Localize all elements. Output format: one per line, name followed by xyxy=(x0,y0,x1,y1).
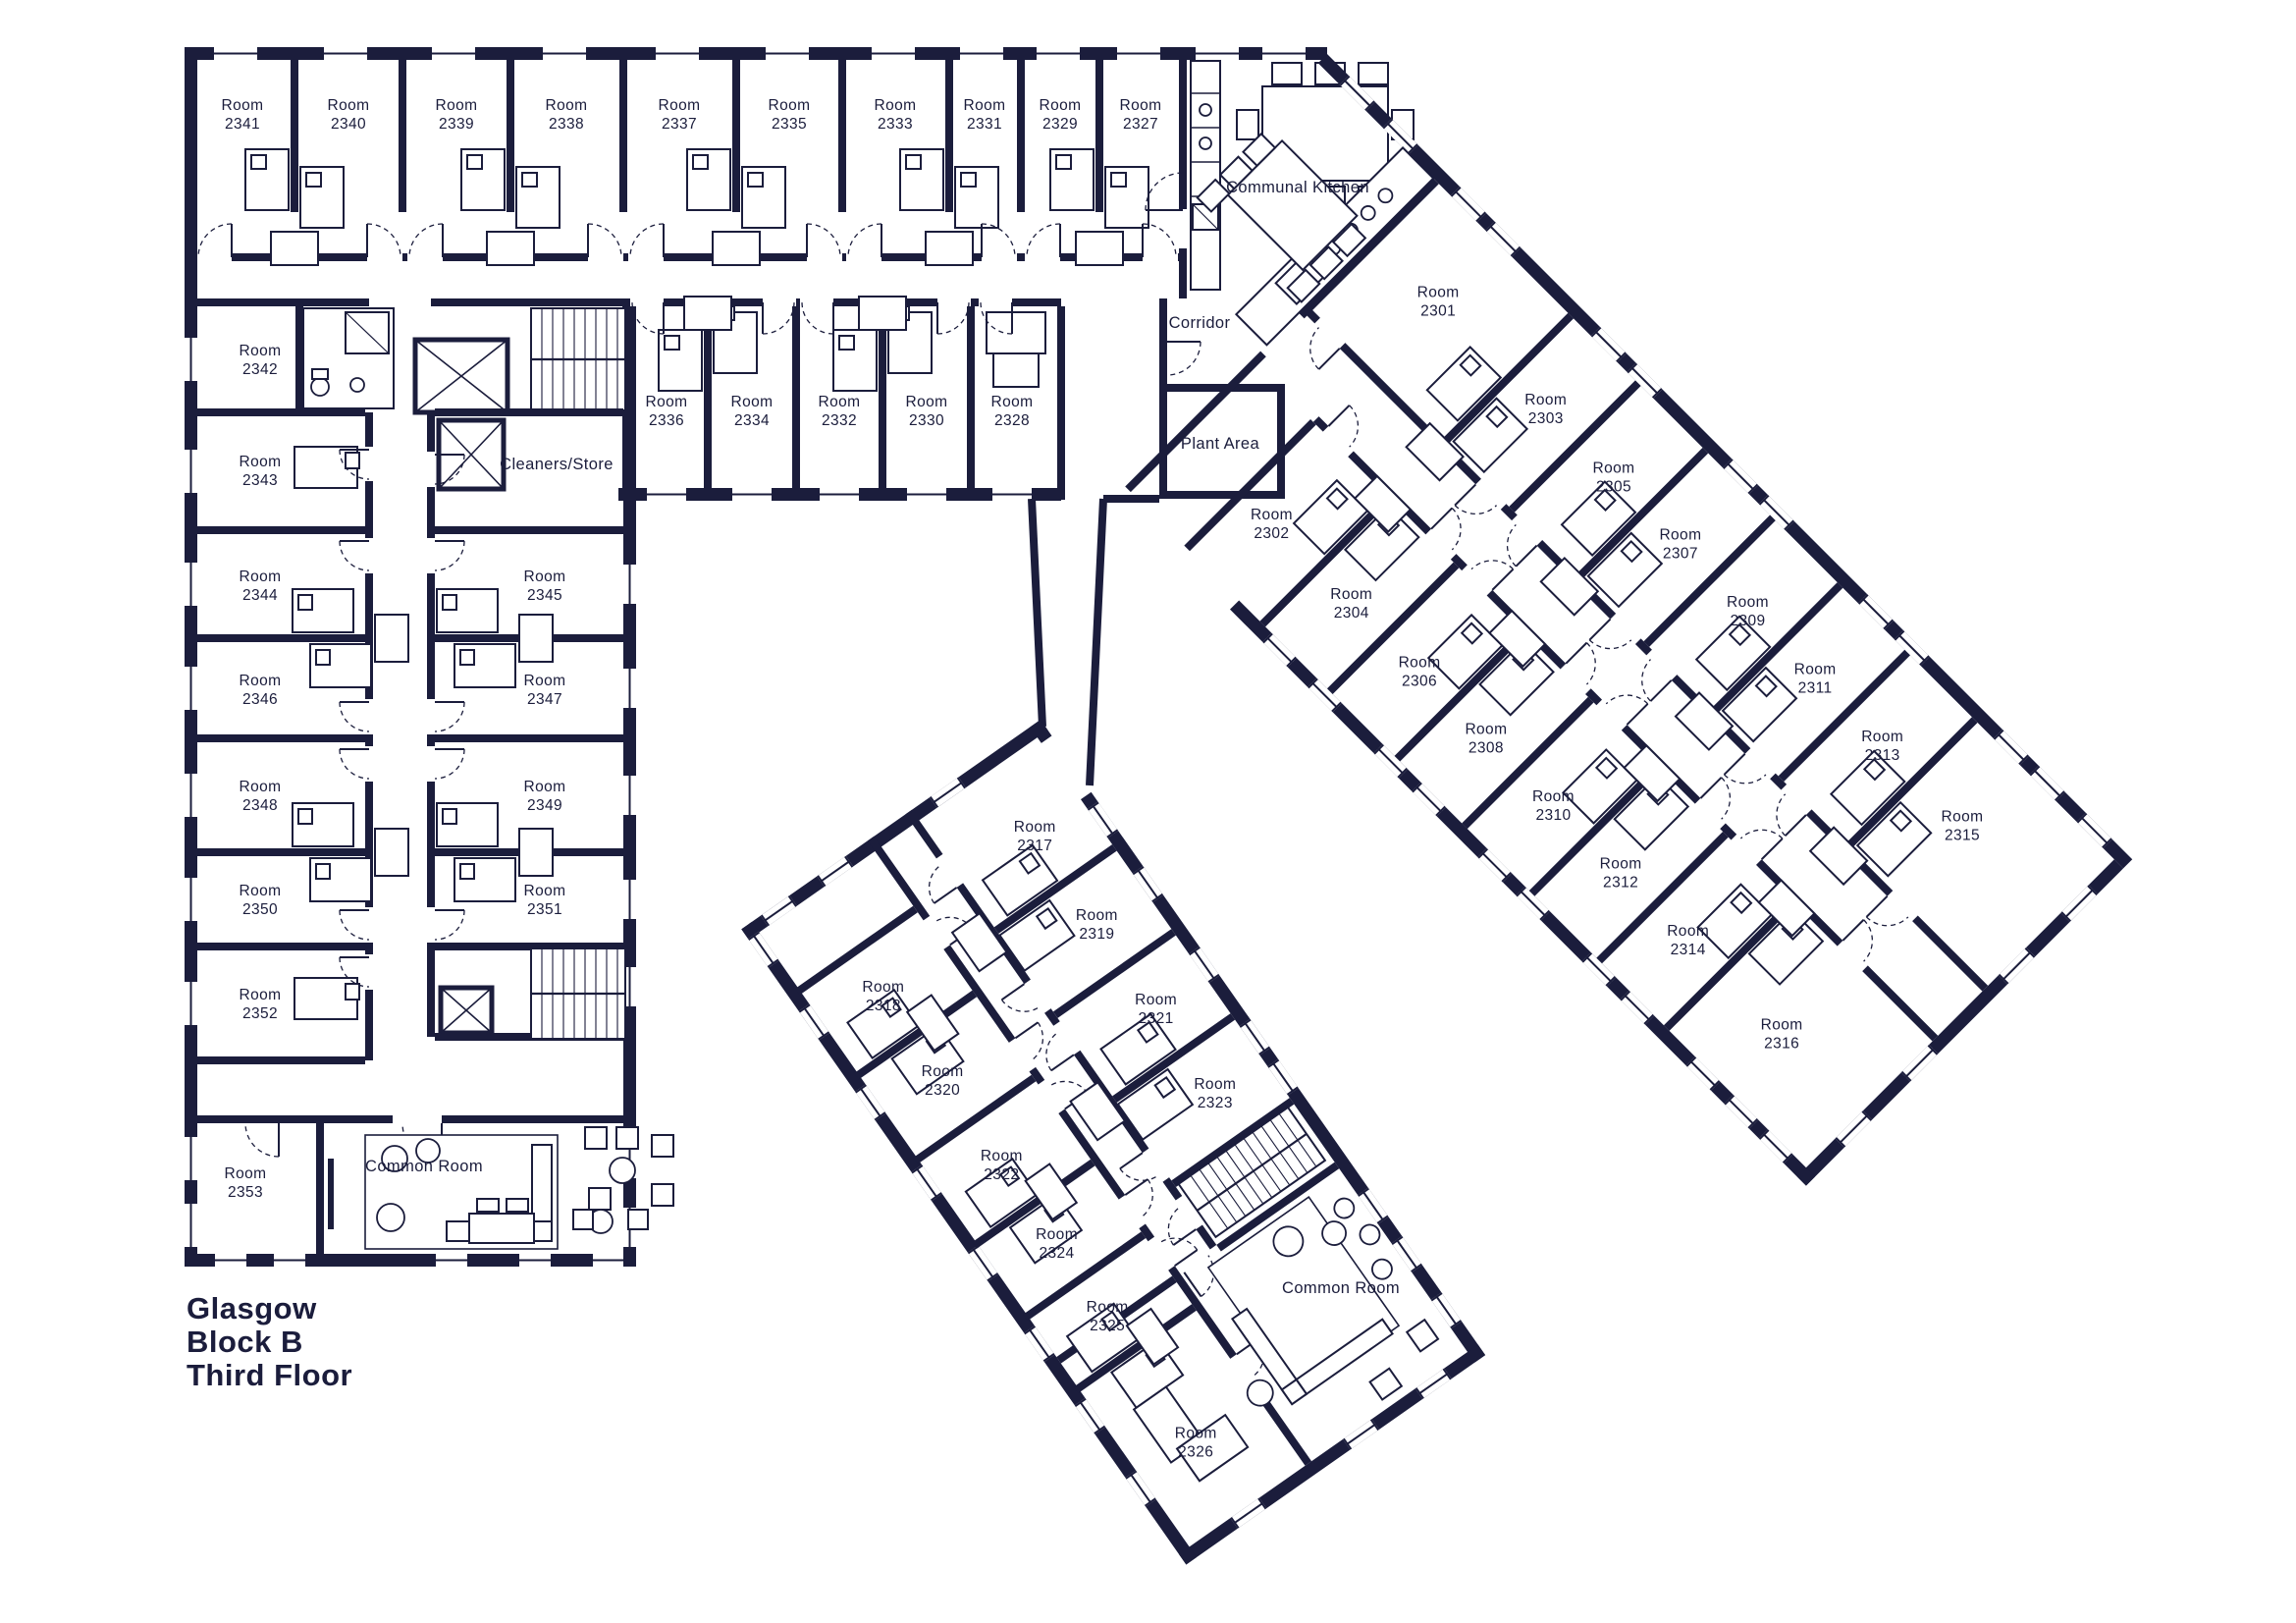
wall xyxy=(197,1115,324,1123)
furniture-outline xyxy=(616,1127,638,1149)
wall xyxy=(427,573,435,699)
door-arc xyxy=(1146,173,1183,210)
furniture-outline xyxy=(519,615,553,662)
door-arc xyxy=(937,302,969,334)
room-label-2305: Room2305 xyxy=(1593,460,1635,495)
wall xyxy=(1596,832,1728,963)
furniture-outline xyxy=(1237,110,1258,139)
room-label-2304: Room2304 xyxy=(1330,586,1372,622)
furniture-outline xyxy=(312,369,328,379)
door-arc xyxy=(848,224,881,257)
wall xyxy=(435,408,623,416)
room-label-2331: Room2331 xyxy=(964,97,1006,133)
room-label-2319: Room2319 xyxy=(1076,907,1118,943)
furniture-outline xyxy=(306,173,321,187)
door-arc xyxy=(1471,548,1513,589)
door-arc xyxy=(1001,984,1040,1022)
plan-line xyxy=(934,888,957,903)
title-block-name: Block B xyxy=(187,1325,303,1359)
door-arc xyxy=(1866,896,1907,938)
wall xyxy=(879,306,886,488)
room-label-2336: Room2336 xyxy=(646,394,688,429)
door-arc xyxy=(435,910,464,940)
wall xyxy=(402,253,407,261)
room-label-2343: Room2343 xyxy=(240,454,282,489)
door-arc xyxy=(1027,224,1060,257)
plan-line xyxy=(1001,984,1024,1000)
wall xyxy=(295,306,303,408)
room-label-2345: Room2345 xyxy=(524,568,566,604)
room-label-2302: Room2302 xyxy=(1251,507,1293,542)
plan-line xyxy=(1015,1022,1038,1038)
plan-line xyxy=(1125,1179,1148,1195)
plan-line xyxy=(1589,620,1610,640)
furniture-outline xyxy=(460,650,474,665)
plan-line xyxy=(1051,1055,1074,1070)
wall xyxy=(1912,916,1988,992)
plan-line xyxy=(1319,349,1340,369)
room-label-2310: Room2310 xyxy=(1532,788,1575,824)
wall xyxy=(365,481,373,538)
room-label-2309: Room2309 xyxy=(1727,594,1769,629)
door-arc xyxy=(1298,328,1339,369)
door-arc xyxy=(1125,1179,1163,1217)
room-label-2306: Room2306 xyxy=(1399,654,1441,689)
wall xyxy=(291,60,298,212)
furniture-circle xyxy=(377,1204,404,1231)
room-label-2315: Room2315 xyxy=(1942,808,1984,843)
door-arc xyxy=(340,910,369,940)
door-arc xyxy=(1589,620,1630,661)
wall xyxy=(316,1115,324,1262)
furniture-outline xyxy=(628,1210,648,1229)
wall xyxy=(1862,965,1938,1041)
door-arc xyxy=(807,224,840,257)
common-room-bottom-label: Common Room xyxy=(1282,1279,1400,1297)
plan-line xyxy=(1455,484,1475,505)
door-arc xyxy=(1328,406,1369,447)
room-label-2337: Room2337 xyxy=(659,97,701,133)
furniture-outline xyxy=(926,232,973,265)
wall xyxy=(945,60,953,212)
room-label-2342: Room2342 xyxy=(240,343,282,378)
wall xyxy=(1159,491,1285,499)
door-arc xyxy=(1167,342,1201,375)
furniture-outline xyxy=(859,297,906,330)
plan-line xyxy=(2034,770,2060,796)
door-arc xyxy=(340,702,369,731)
wall xyxy=(619,60,627,212)
furniture-outline xyxy=(961,173,976,187)
door-arc xyxy=(1842,920,1884,961)
plan-line xyxy=(1842,920,1863,941)
floor-plan-drawing: Communal Kitchen Corridor Plant Area Cle… xyxy=(0,0,2296,1623)
title-block: Glasgow Block B Third Floor xyxy=(187,1291,352,1392)
wall xyxy=(971,298,979,306)
room-label-2307: Room2307 xyxy=(1659,526,1701,562)
furniture-outline xyxy=(713,232,760,265)
wall xyxy=(838,60,846,212)
furniture-outline xyxy=(1056,155,1071,169)
door-arc xyxy=(802,302,833,334)
door-arc xyxy=(1724,754,1765,795)
plan-line xyxy=(2081,817,2108,843)
plan-line xyxy=(2065,890,2093,917)
wall xyxy=(1179,60,1187,209)
door-arc xyxy=(198,224,232,257)
wall xyxy=(427,782,435,907)
plan-line xyxy=(1516,546,1536,567)
wall xyxy=(324,1115,393,1123)
furniture-outline xyxy=(271,232,318,265)
wall xyxy=(365,943,373,954)
door-arc xyxy=(435,702,464,731)
room-label-2327: Room2327 xyxy=(1120,97,1162,133)
wall xyxy=(427,943,435,1037)
wall xyxy=(365,734,373,746)
furniture-outline xyxy=(652,1135,673,1157)
plan-line xyxy=(1120,1153,1143,1168)
door-arc xyxy=(588,224,621,257)
plan-line xyxy=(1724,754,1744,775)
furniture-outline xyxy=(589,1188,611,1210)
plan-line xyxy=(1328,406,1349,426)
plan-line xyxy=(2002,952,2030,980)
wall xyxy=(435,526,623,534)
wall xyxy=(1327,563,1459,694)
wall xyxy=(197,734,365,742)
common-room-left-label: Common Room xyxy=(365,1158,483,1175)
room-label-2301: Room2301 xyxy=(1417,284,1460,319)
wall xyxy=(1125,352,1266,493)
plan-line xyxy=(1173,1229,1196,1245)
room-label-2321: Room2321 xyxy=(1135,992,1177,1027)
furniture-outline xyxy=(298,809,312,824)
room-label-2316: Room2316 xyxy=(1761,1016,1803,1052)
furniture-outline xyxy=(316,650,330,665)
room-label-2349: Room2349 xyxy=(524,779,566,814)
furniture-outline xyxy=(519,829,553,876)
furniture-outline xyxy=(987,312,1045,353)
door-arc xyxy=(1495,524,1536,566)
wall xyxy=(905,810,942,859)
door-arc xyxy=(1700,778,1741,819)
furniture-outline xyxy=(1111,173,1126,187)
room-label-2340: Room2340 xyxy=(328,97,370,133)
door-arc xyxy=(409,224,443,257)
room-label-2338: Room2338 xyxy=(546,97,588,133)
wall xyxy=(792,306,800,488)
furniture-outline xyxy=(507,1199,528,1212)
wall xyxy=(868,837,930,921)
room-label-2341: Room2341 xyxy=(222,97,264,133)
title-project: Glasgow xyxy=(187,1291,317,1325)
plan-line xyxy=(1090,499,1103,785)
door-arc xyxy=(435,749,464,779)
wall xyxy=(507,60,514,212)
floor-plan-page: Communal Kitchen Corridor Plant Area Cle… xyxy=(0,0,2296,1623)
room-label-2344: Room2344 xyxy=(240,568,282,604)
wall xyxy=(1012,298,1061,306)
furniture-outline xyxy=(748,173,763,187)
wall xyxy=(197,408,365,416)
plan-line xyxy=(1595,331,1622,357)
furniture-circle xyxy=(311,378,329,396)
left-wing xyxy=(185,60,636,1267)
room-label-2308: Room2308 xyxy=(1465,721,1507,756)
room-label-2335: Room2335 xyxy=(769,97,811,133)
door-arc xyxy=(1740,818,1782,859)
wall xyxy=(197,1056,365,1064)
plan-line xyxy=(1455,191,1481,218)
wall xyxy=(191,298,369,306)
plan-line xyxy=(1700,778,1721,798)
wall xyxy=(185,1254,636,1267)
room-label-2339: Room2339 xyxy=(436,97,478,133)
wall xyxy=(427,412,435,452)
plan-line xyxy=(1998,734,2024,761)
wall xyxy=(1178,253,1183,261)
room-label-2313: Room2313 xyxy=(1861,729,1903,764)
plan-line xyxy=(1431,508,1452,528)
furniture-outline xyxy=(684,297,731,330)
room-label-2329: Room2329 xyxy=(1040,97,1082,133)
plan-line xyxy=(1866,896,1887,917)
furniture-outline xyxy=(443,595,456,610)
door-arc xyxy=(1036,1032,1074,1070)
wall xyxy=(1017,60,1025,212)
plan-line xyxy=(1762,839,1783,859)
door-arc xyxy=(435,541,464,570)
plan-line xyxy=(1840,1115,1867,1143)
furniture-circle xyxy=(350,378,364,392)
door-arc xyxy=(1431,508,1472,549)
furniture-outline xyxy=(346,984,359,1000)
wall xyxy=(1313,416,1329,432)
wall xyxy=(967,306,975,488)
furniture-circle xyxy=(1200,137,1211,149)
wall xyxy=(197,526,365,534)
wall xyxy=(435,734,623,742)
door-arc xyxy=(340,749,369,779)
furniture-outline xyxy=(1370,1369,1402,1400)
plan-line xyxy=(1905,1050,1933,1077)
plan-line xyxy=(1651,680,1672,701)
furniture-circle xyxy=(1200,104,1211,116)
door-arc xyxy=(1764,794,1805,836)
wall xyxy=(1017,253,1025,261)
room-label-2350: Room2350 xyxy=(240,883,282,918)
room-label-2347: Room2347 xyxy=(524,673,566,708)
room-label-2351: Room2351 xyxy=(524,883,566,918)
wall xyxy=(197,848,365,856)
plan-line xyxy=(1032,499,1042,727)
furniture-circle xyxy=(1243,1376,1278,1411)
furniture-outline xyxy=(487,232,534,265)
wall xyxy=(427,487,435,538)
furniture-outline xyxy=(1191,61,1220,290)
wall xyxy=(442,1115,623,1123)
furniture-circle xyxy=(610,1158,635,1183)
title-floor: Third Floor xyxy=(187,1358,352,1392)
wall xyxy=(796,298,800,306)
furniture-outline xyxy=(477,1199,499,1212)
plan-line xyxy=(1728,463,1754,490)
door-arc xyxy=(982,224,1015,257)
wall xyxy=(197,943,365,950)
wall xyxy=(185,60,197,1267)
furniture-outline xyxy=(460,864,474,879)
furniture-outline xyxy=(1407,1320,1438,1351)
wall xyxy=(431,298,630,306)
door-arc xyxy=(763,302,794,334)
door-arc xyxy=(1606,683,1647,725)
room-label-2330: Room2330 xyxy=(906,394,948,429)
furniture-outline xyxy=(298,595,312,610)
wall xyxy=(1095,60,1103,212)
furniture-outline xyxy=(652,1184,673,1206)
door-arc xyxy=(367,224,400,257)
wall xyxy=(842,253,846,261)
plan-line xyxy=(1490,226,1517,252)
door-arc xyxy=(1629,660,1671,701)
wall xyxy=(623,253,628,261)
furniture-outline xyxy=(346,453,359,468)
plan-line xyxy=(1863,599,1890,625)
furniture-outline xyxy=(443,809,456,824)
door-arc xyxy=(1143,224,1176,257)
room-label-2328: Room2328 xyxy=(991,394,1034,429)
furniture-outline xyxy=(993,353,1039,387)
room-label-2353: Room2353 xyxy=(225,1165,267,1201)
furniture-outline xyxy=(1076,232,1123,265)
wall xyxy=(365,990,373,1060)
room-label-2317: Room2317 xyxy=(1014,819,1056,854)
furniture-outline xyxy=(693,155,708,169)
wall xyxy=(197,634,365,642)
wall xyxy=(1462,697,1593,829)
furniture-outline xyxy=(522,173,537,187)
door-arc xyxy=(1455,484,1496,525)
furniture-outline xyxy=(585,1127,607,1149)
door-arc xyxy=(1566,643,1607,684)
door-arc xyxy=(1157,1207,1196,1245)
furniture-outline xyxy=(906,155,921,169)
wall xyxy=(1159,298,1167,499)
room-label-2334: Room2334 xyxy=(731,394,774,429)
plan-line xyxy=(1627,704,1647,725)
communal-kitchen-label: Communal Kitchen xyxy=(1226,179,1369,196)
furniture-outline xyxy=(251,155,266,169)
furniture-outline xyxy=(1359,63,1388,84)
wall xyxy=(1057,306,1065,500)
door-arc xyxy=(1015,1022,1053,1060)
furniture-outline xyxy=(469,1214,534,1243)
bottom-wing xyxy=(741,720,1485,1565)
furniture-outline xyxy=(375,615,408,662)
room-label-2312: Room2312 xyxy=(1600,855,1642,891)
room-label-2346: Room2346 xyxy=(240,673,282,708)
door-arc xyxy=(340,541,369,570)
wall xyxy=(704,306,712,488)
plan-line xyxy=(1492,569,1513,590)
wall xyxy=(1277,384,1285,499)
door-arc xyxy=(630,224,664,257)
room-label-2311: Room2311 xyxy=(1794,661,1837,696)
plant-area-label: Plant Area xyxy=(1181,435,1260,453)
furniture-layer xyxy=(328,1127,673,1249)
wall xyxy=(1103,495,1159,503)
wall xyxy=(732,60,740,212)
wall xyxy=(365,412,373,447)
furniture-outline xyxy=(839,336,854,350)
room-label-2303: Room2303 xyxy=(1524,392,1567,427)
wall xyxy=(427,734,435,746)
room-label-2314: Room2314 xyxy=(1667,923,1709,958)
room-label-2348: Room2348 xyxy=(240,779,282,814)
furniture-outline xyxy=(573,1210,593,1229)
furniture-circle xyxy=(1330,1195,1358,1222)
wall xyxy=(328,1159,334,1229)
furniture-outline xyxy=(316,864,330,879)
door-arc xyxy=(919,865,957,903)
plan-line xyxy=(1786,815,1806,836)
furniture-outline xyxy=(1272,63,1302,84)
room-label-2352: Room2352 xyxy=(240,987,282,1022)
wall xyxy=(399,60,406,212)
cleaners-store-label: Cleaners/Store xyxy=(500,456,614,473)
furniture-outline xyxy=(467,155,482,169)
door-arc xyxy=(245,1123,279,1157)
corridor-label: Corridor xyxy=(1169,314,1231,332)
plan-line xyxy=(1175,1250,1198,1266)
furniture-outline xyxy=(665,336,679,350)
room-label-2333: Room2333 xyxy=(875,97,917,133)
plan-line xyxy=(1566,643,1586,664)
room-label-2332: Room2332 xyxy=(819,394,861,429)
furniture-outline xyxy=(375,829,408,876)
room-label-2323: Room2323 xyxy=(1194,1076,1236,1111)
